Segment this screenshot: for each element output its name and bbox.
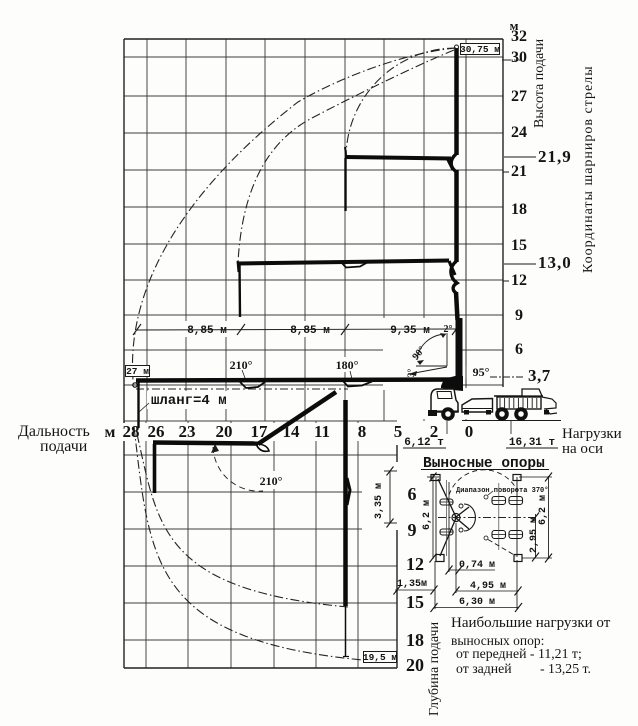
- svg-text:180°: 180°: [336, 358, 359, 372]
- svg-text:4,95 м: 4,95 м: [470, 581, 506, 592]
- svg-text:18: 18: [406, 630, 424, 650]
- svg-text:Наибольшие нагрузки от: Наибольшие нагрузки от: [451, 615, 611, 631]
- svg-text:9,35 м: 9,35 м: [390, 325, 430, 337]
- svg-text:6,2 м: 6,2 м: [422, 500, 433, 530]
- svg-text:5: 5: [394, 422, 403, 441]
- svg-text:Высота подачи: Высота подачи: [532, 38, 547, 128]
- svg-text:1,35м: 1,35м: [397, 579, 427, 590]
- svg-text:3,7: 3,7: [528, 366, 551, 385]
- svg-text:8,85 м: 8,85 м: [187, 325, 227, 337]
- svg-text:27: 27: [511, 88, 527, 105]
- svg-text:27 м: 27 м: [126, 366, 149, 377]
- svg-text:12: 12: [511, 272, 527, 289]
- svg-text:20: 20: [216, 422, 233, 441]
- svg-text:2,95 м: 2,95 м: [529, 517, 540, 553]
- svg-text:17: 17: [251, 422, 269, 441]
- svg-text:3°: 3°: [406, 369, 417, 378]
- svg-text:24: 24: [511, 124, 527, 141]
- svg-text:15: 15: [406, 592, 424, 612]
- svg-text:32: 32: [511, 28, 527, 45]
- svg-text:16,31 т: 16,31 т: [509, 437, 555, 449]
- svg-text:30,75 м: 30,75 м: [460, 44, 500, 55]
- svg-text:21: 21: [511, 163, 527, 180]
- svg-text:0: 0: [465, 422, 474, 441]
- svg-text:18: 18: [511, 201, 527, 218]
- svg-text:Глубина подачи: Глубина подачи: [427, 621, 442, 716]
- svg-text:м: м: [105, 424, 116, 441]
- svg-text:95°: 95°: [473, 365, 490, 379]
- svg-text:30: 30: [511, 49, 527, 66]
- svg-text:14: 14: [283, 422, 301, 441]
- svg-text:28: 28: [123, 422, 140, 441]
- svg-text:11: 11: [314, 422, 330, 441]
- svg-text:8: 8: [358, 422, 367, 441]
- svg-text:Нагрузки: Нагрузки: [562, 426, 622, 442]
- svg-text:на оси: на оси: [562, 441, 603, 457]
- svg-text:210°: 210°: [260, 474, 283, 488]
- svg-text:12: 12: [406, 554, 424, 574]
- svg-text:21,9: 21,9: [538, 147, 572, 166]
- svg-text:3,35 м: 3,35 м: [374, 483, 385, 519]
- svg-text:9: 9: [408, 520, 417, 540]
- svg-text:6: 6: [515, 341, 523, 358]
- svg-text:6,12 т: 6,12 т: [404, 437, 444, 449]
- svg-text:19,5 м: 19,5 м: [363, 652, 398, 663]
- svg-text:подачи: подачи: [40, 438, 88, 455]
- svg-text:6: 6: [408, 484, 417, 504]
- svg-text:20: 20: [406, 655, 424, 675]
- svg-text:23: 23: [179, 422, 196, 441]
- svg-text:15: 15: [511, 237, 527, 254]
- svg-text:8,85 м: 8,85 м: [290, 325, 330, 337]
- svg-text:0,74 м: 0,74 м: [459, 560, 495, 571]
- svg-text:6,30 м: 6,30 м: [459, 597, 495, 608]
- svg-text:шланг=4 м: шланг=4 м: [151, 393, 227, 409]
- svg-text:Координаты шарниров стрелы: Координаты шарниров стрелы: [581, 65, 596, 273]
- svg-text:9: 9: [515, 307, 523, 324]
- svg-text:26: 26: [148, 422, 165, 441]
- svg-text:13,0: 13,0: [538, 253, 572, 272]
- svg-text:210°: 210°: [230, 358, 253, 372]
- svg-text:2°: 2°: [444, 324, 453, 335]
- svg-text:Диапазон поворота 370°: Диапазон поворота 370°: [456, 486, 548, 495]
- svg-text:от передней - 11,21 т;: от передней - 11,21 т;: [456, 646, 582, 661]
